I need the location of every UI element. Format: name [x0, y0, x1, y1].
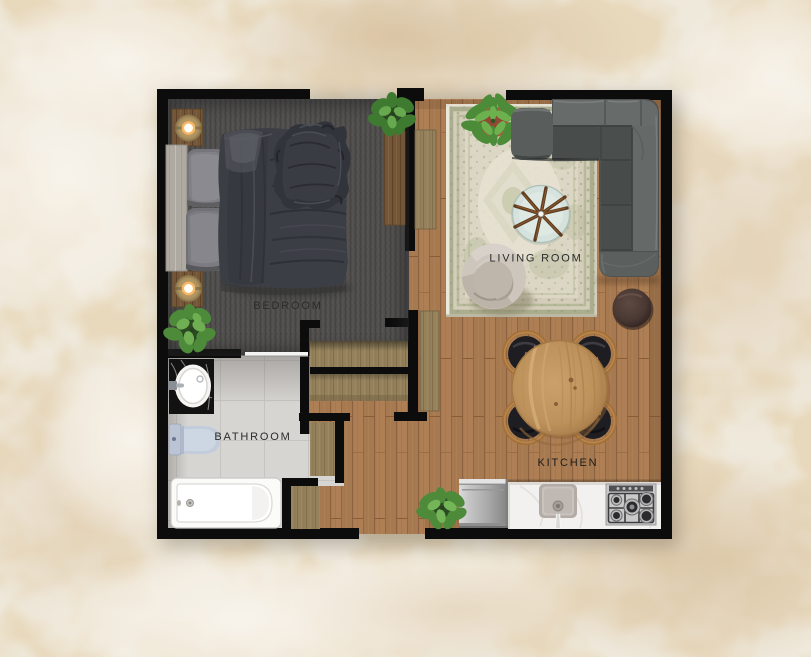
svg-text:BEDROOM: BEDROOM	[253, 300, 322, 312]
svg-text:LIVING ROOM: LIVING ROOM	[489, 253, 582, 265]
svg-text:KITCHEN: KITCHEN	[538, 457, 599, 469]
svg-text:BATHROOM: BATHROOM	[214, 431, 291, 443]
